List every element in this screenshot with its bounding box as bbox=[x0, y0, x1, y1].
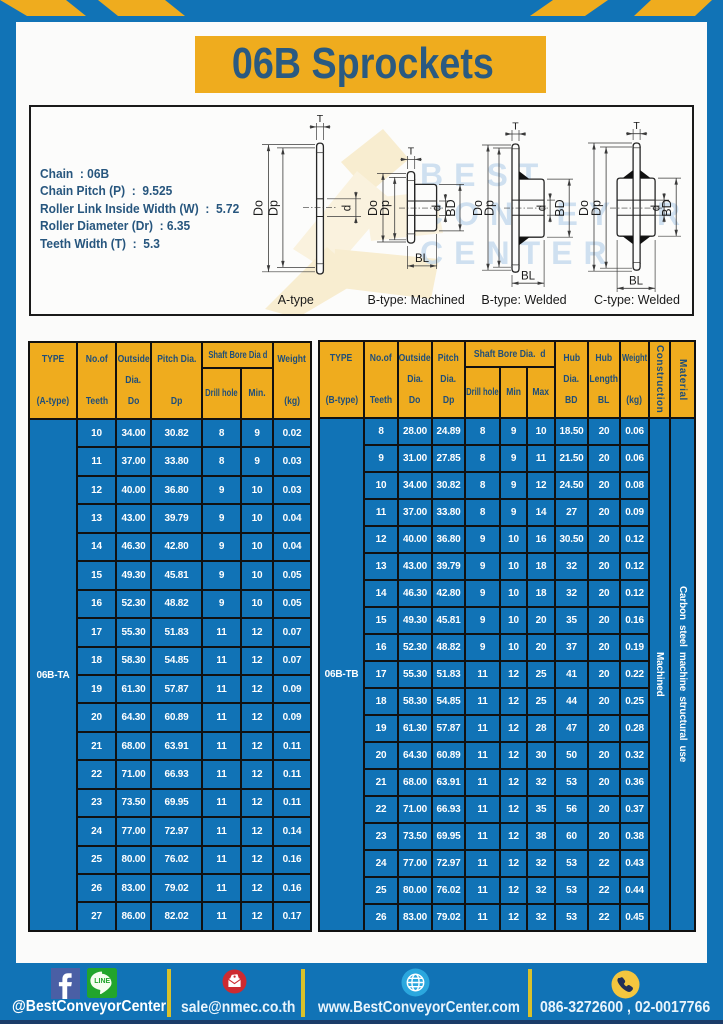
svg-text:C-type: Welded: C-type: Welded bbox=[594, 293, 680, 307]
svg-text:BL: BL bbox=[415, 253, 430, 265]
svg-text:BD: BD bbox=[444, 199, 458, 216]
svg-text:BD: BD bbox=[660, 199, 674, 216]
svg-text:T: T bbox=[408, 146, 415, 158]
svg-text:d: d bbox=[432, 205, 444, 211]
svg-text:BL: BL bbox=[629, 276, 644, 288]
svg-text:A-type: A-type bbox=[278, 293, 314, 307]
svg-text:Dp: Dp bbox=[378, 200, 392, 216]
svg-text:B-type: Machined: B-type: Machined bbox=[368, 293, 465, 307]
svg-text:T: T bbox=[512, 121, 519, 133]
svg-text:T: T bbox=[633, 120, 640, 132]
svg-text:BD: BD bbox=[553, 199, 567, 216]
svg-text:T: T bbox=[317, 113, 324, 125]
svg-text:Do: Do bbox=[252, 200, 266, 216]
svg-text:d: d bbox=[537, 205, 549, 211]
svg-text:Dp: Dp bbox=[590, 200, 604, 216]
svg-text:B-type: Welded: B-type: Welded bbox=[481, 293, 566, 307]
svg-text:d: d bbox=[342, 205, 354, 211]
svg-text:Dp: Dp bbox=[483, 200, 497, 216]
svg-text:BL: BL bbox=[521, 271, 536, 283]
svg-text:LINE: LINE bbox=[94, 978, 110, 985]
svg-text:Dp: Dp bbox=[267, 200, 281, 216]
